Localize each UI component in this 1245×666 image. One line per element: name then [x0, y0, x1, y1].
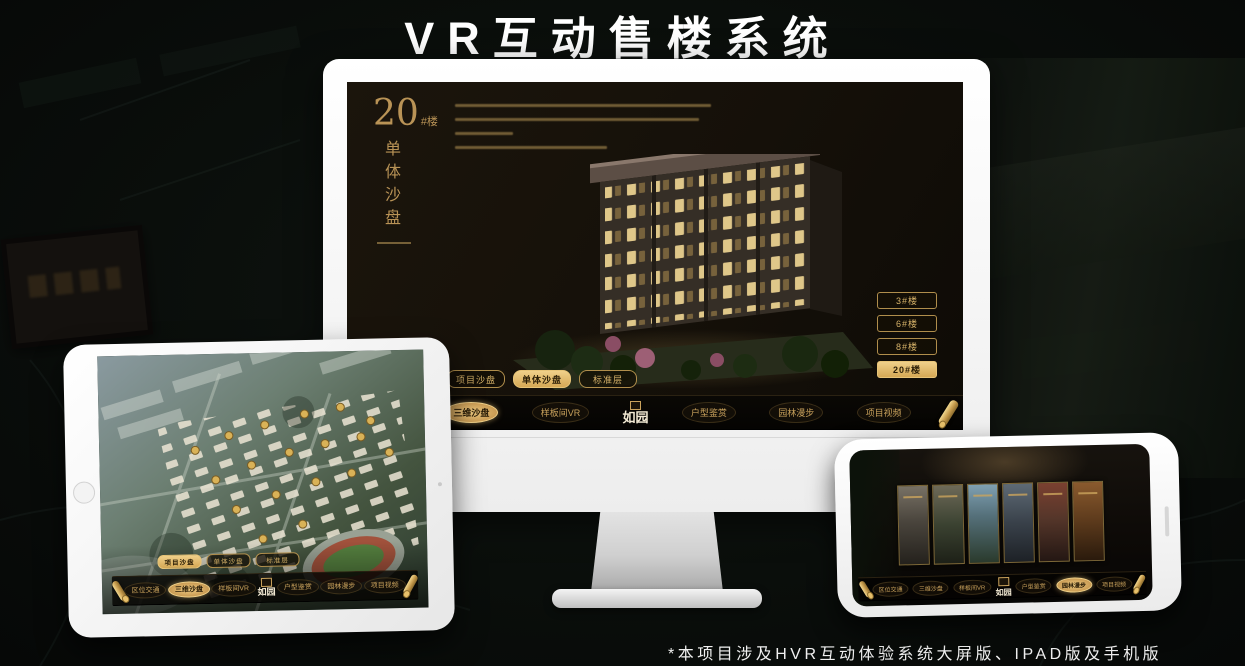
monitor-stand-base — [552, 589, 762, 608]
ipad-bottom-nav: 区位交通 三维沙盘 样板间VR 如园 户型鉴赏 园林漫步 项目视频 — [112, 570, 419, 606]
nav-item-unit-gallery[interactable]: 户型鉴赏 — [682, 402, 736, 423]
scroll-menu-icon[interactable] — [1132, 574, 1146, 593]
tab-standard-floor[interactable]: 标准层 — [255, 552, 299, 567]
scroll-menu-icon[interactable] — [937, 398, 959, 427]
nav-item-garden-walk[interactable]: 园林漫步 — [320, 578, 362, 595]
floor-button-6[interactable]: 6#楼 — [877, 315, 937, 332]
monitor-stand — [591, 512, 723, 592]
block-number: 20 — [373, 93, 419, 134]
tab-project-sandbox[interactable]: 项目沙盘 — [157, 554, 201, 569]
building-3d-model[interactable] — [495, 154, 877, 394]
nav-item-unit-gallery[interactable]: 户型鉴赏 — [1016, 578, 1052, 594]
tab-single-sandbox[interactable]: 单体沙盘 — [513, 370, 571, 388]
nav-item-project-video[interactable]: 项目视频 — [1096, 576, 1132, 592]
block-unit: #楼 — [421, 116, 438, 128]
floor-button-group: 3#楼 6#楼 8#楼 20#楼 — [877, 292, 937, 378]
nav-item-project-video[interactable]: 项目视频 — [364, 577, 406, 594]
headline-rule — [377, 242, 411, 244]
nav-item-3d-sandbox[interactable]: 三维沙盘 — [444, 402, 498, 423]
nav-item-location[interactable]: 区位交通 — [124, 582, 166, 599]
speaker-slot-icon — [1165, 506, 1170, 536]
phone-device: 区位交通 三维沙盘 样板间VR 如园 户型鉴赏 园林漫步 项目视频 — [834, 432, 1182, 618]
poster-title: VR互动售楼系统 — [0, 2, 1245, 67]
ipad-device: 项目沙盘 单体沙盘 标准层 区位交通 三维沙盘 样板间VR 如园 户型鉴赏 园林… — [63, 337, 455, 638]
nav-item-showroom-vr[interactable]: 样板间VR — [953, 579, 992, 595]
gallery-panel[interactable] — [967, 483, 1000, 564]
tab-standard-floor[interactable]: 标准层 — [579, 370, 637, 388]
nav-item-location[interactable]: 区位交通 — [872, 581, 908, 597]
brand-seal-icon — [998, 576, 1009, 585]
description-paragraph — [455, 104, 711, 160]
gallery-panel[interactable] — [1002, 482, 1035, 563]
nav-item-3d-sandbox[interactable]: 三维沙盘 — [913, 580, 949, 596]
brand-logo-text: 如园 — [257, 589, 275, 598]
block-subtitle: 单体沙盘 — [379, 140, 403, 232]
gallery-panel[interactable] — [1072, 481, 1105, 562]
brand-seal-icon — [261, 578, 272, 587]
brand-logo: 如园 — [995, 576, 1011, 595]
home-button[interactable] — [73, 481, 95, 503]
poster: VR互动售楼系统 *本项目涉及HVR互动体验系统大屏版、IPAD版及手机版 20… — [0, 0, 1245, 666]
floor-button-20[interactable]: 20#楼 — [877, 361, 937, 378]
ipad-view-tabs: 项目沙盘 单体沙盘 标准层 — [157, 552, 299, 569]
nav-item-showroom-vr[interactable]: 样板间VR — [211, 580, 256, 597]
brand-logo-text: 如园 — [623, 412, 649, 425]
brand-logo: 如园 — [623, 401, 649, 425]
nav-item-showroom-vr[interactable]: 样板间VR — [532, 402, 590, 423]
gallery-panel[interactable] — [1037, 482, 1070, 563]
monitor-view-tabs: 项目沙盘 单体沙盘 标准层 — [447, 370, 637, 388]
background-award-plaque — [1, 225, 154, 349]
nav-item-garden-walk[interactable]: 园林漫步 — [769, 402, 823, 423]
nav-item-3d-sandbox[interactable]: 三维沙盘 — [168, 581, 210, 598]
tab-single-sandbox[interactable]: 单体沙盘 — [206, 553, 250, 568]
brand-seal-icon — [630, 401, 641, 410]
brand-logo-text: 如园 — [996, 587, 1012, 595]
gallery-panels — [897, 481, 1105, 566]
gallery-panel[interactable] — [932, 484, 965, 565]
gallery-panel[interactable] — [897, 485, 930, 566]
scroll-menu-icon[interactable] — [858, 580, 872, 598]
phone-screen: 区位交通 三维沙盘 样板间VR 如园 户型鉴赏 园林漫步 项目视频 — [849, 444, 1152, 607]
poster-footnote: *本项目涉及HVR互动体验系统大屏版、IPAD版及手机版 — [668, 640, 1162, 664]
phone-bottom-nav: 区位交通 三维沙盘 样板间VR 如园 户型鉴赏 园林漫步 项目视频 — [858, 571, 1146, 602]
block-headline: 20#楼 单体沙盘 — [373, 96, 438, 244]
nav-item-unit-gallery[interactable]: 户型鉴赏 — [277, 579, 319, 596]
nav-item-project-video[interactable]: 项目视频 — [857, 402, 911, 423]
floor-button-8[interactable]: 8#楼 — [877, 338, 937, 355]
tab-project-sandbox[interactable]: 项目沙盘 — [447, 370, 505, 388]
floor-button-3[interactable]: 3#楼 — [877, 292, 937, 309]
nav-item-garden-walk[interactable]: 园林漫步 — [1056, 577, 1092, 593]
ipad-screen: 项目沙盘 单体沙盘 标准层 区位交通 三维沙盘 样板间VR 如园 户型鉴赏 园林… — [97, 350, 428, 615]
brand-logo: 如园 — [257, 578, 275, 598]
camera-dot-icon — [438, 482, 442, 486]
